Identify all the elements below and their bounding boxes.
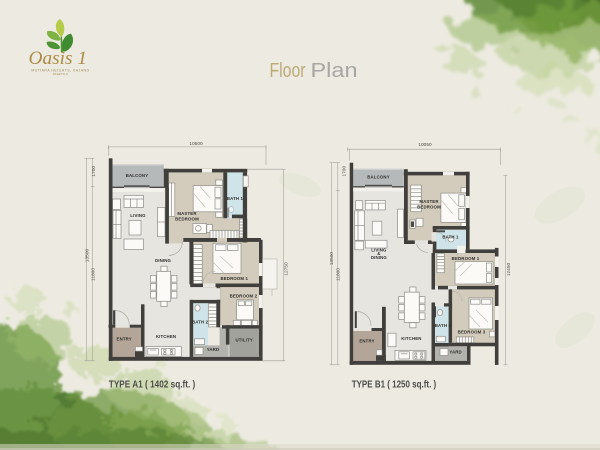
- svg-text:11800: 11800: [335, 268, 341, 281]
- svg-text:DINING: DINING: [155, 258, 172, 263]
- svg-text:10500: 10500: [189, 141, 203, 147]
- svg-text:12450: 12450: [506, 263, 512, 277]
- svg-text:TYPE B1 ( 1250 sq.ft. ): TYPE B1 ( 1250 sq.ft. ): [352, 380, 437, 391]
- svg-text:BALCONY: BALCONY: [126, 173, 149, 178]
- svg-text:BEDROOM 1: BEDROOM 1: [452, 256, 480, 261]
- svg-text:1700: 1700: [91, 166, 97, 177]
- svg-text:ENTRY: ENTRY: [117, 337, 132, 342]
- svg-text:BEDROOM 3: BEDROOM 3: [458, 329, 486, 334]
- svg-text:BATH 2: BATH 2: [192, 320, 209, 325]
- svg-text:YARD: YARD: [449, 350, 462, 355]
- svg-text:12750: 12750: [283, 262, 289, 276]
- svg-text:BEDROOM 2: BEDROOM 2: [230, 294, 258, 299]
- svg-text:BEDROOM: BEDROOM: [175, 217, 199, 222]
- svg-text:13500: 13500: [329, 252, 335, 266]
- svg-text:11800: 11800: [91, 268, 97, 281]
- svg-text:KITCHEN: KITCHEN: [401, 336, 421, 341]
- svg-text:1700: 1700: [342, 166, 348, 177]
- svg-text:Floor: Floor: [270, 59, 306, 82]
- svg-text:BALCONY: BALCONY: [367, 174, 390, 179]
- svg-text:DINING: DINING: [371, 255, 388, 260]
- svg-text:13500: 13500: [84, 249, 90, 263]
- svg-text:10050: 10050: [418, 142, 432, 148]
- svg-text:Oasis 1: Oasis 1: [29, 49, 88, 69]
- svg-text:MASTER: MASTER: [177, 211, 197, 216]
- svg-text:MUTIARA HEIGHTS, KAJANG: MUTIARA HEIGHTS, KAJANG: [31, 69, 89, 73]
- svg-text:BATH 1: BATH 1: [227, 196, 244, 201]
- svg-text:BATH 1: BATH 1: [442, 235, 459, 240]
- svg-text:KITCHEN: KITCHEN: [156, 334, 176, 339]
- svg-text:LIVING: LIVING: [130, 213, 146, 218]
- svg-text:ENTRY: ENTRY: [359, 338, 374, 343]
- svg-text:BATH 2: BATH 2: [435, 323, 452, 328]
- svg-text:YARD: YARD: [207, 347, 220, 352]
- svg-text:TYPE A1 ( 1402 sq.ft. ): TYPE A1 ( 1402 sq.ft. ): [109, 380, 196, 391]
- svg-text:MASTER: MASTER: [419, 199, 439, 204]
- svg-text:FREEHOLD: FREEHOLD: [53, 73, 68, 76]
- svg-text:UTILITY: UTILITY: [235, 338, 252, 343]
- svg-text:BEDROOM: BEDROOM: [417, 205, 441, 210]
- svg-text:BEDROOM 1: BEDROOM 1: [220, 276, 248, 281]
- svg-text:Plan: Plan: [311, 59, 358, 82]
